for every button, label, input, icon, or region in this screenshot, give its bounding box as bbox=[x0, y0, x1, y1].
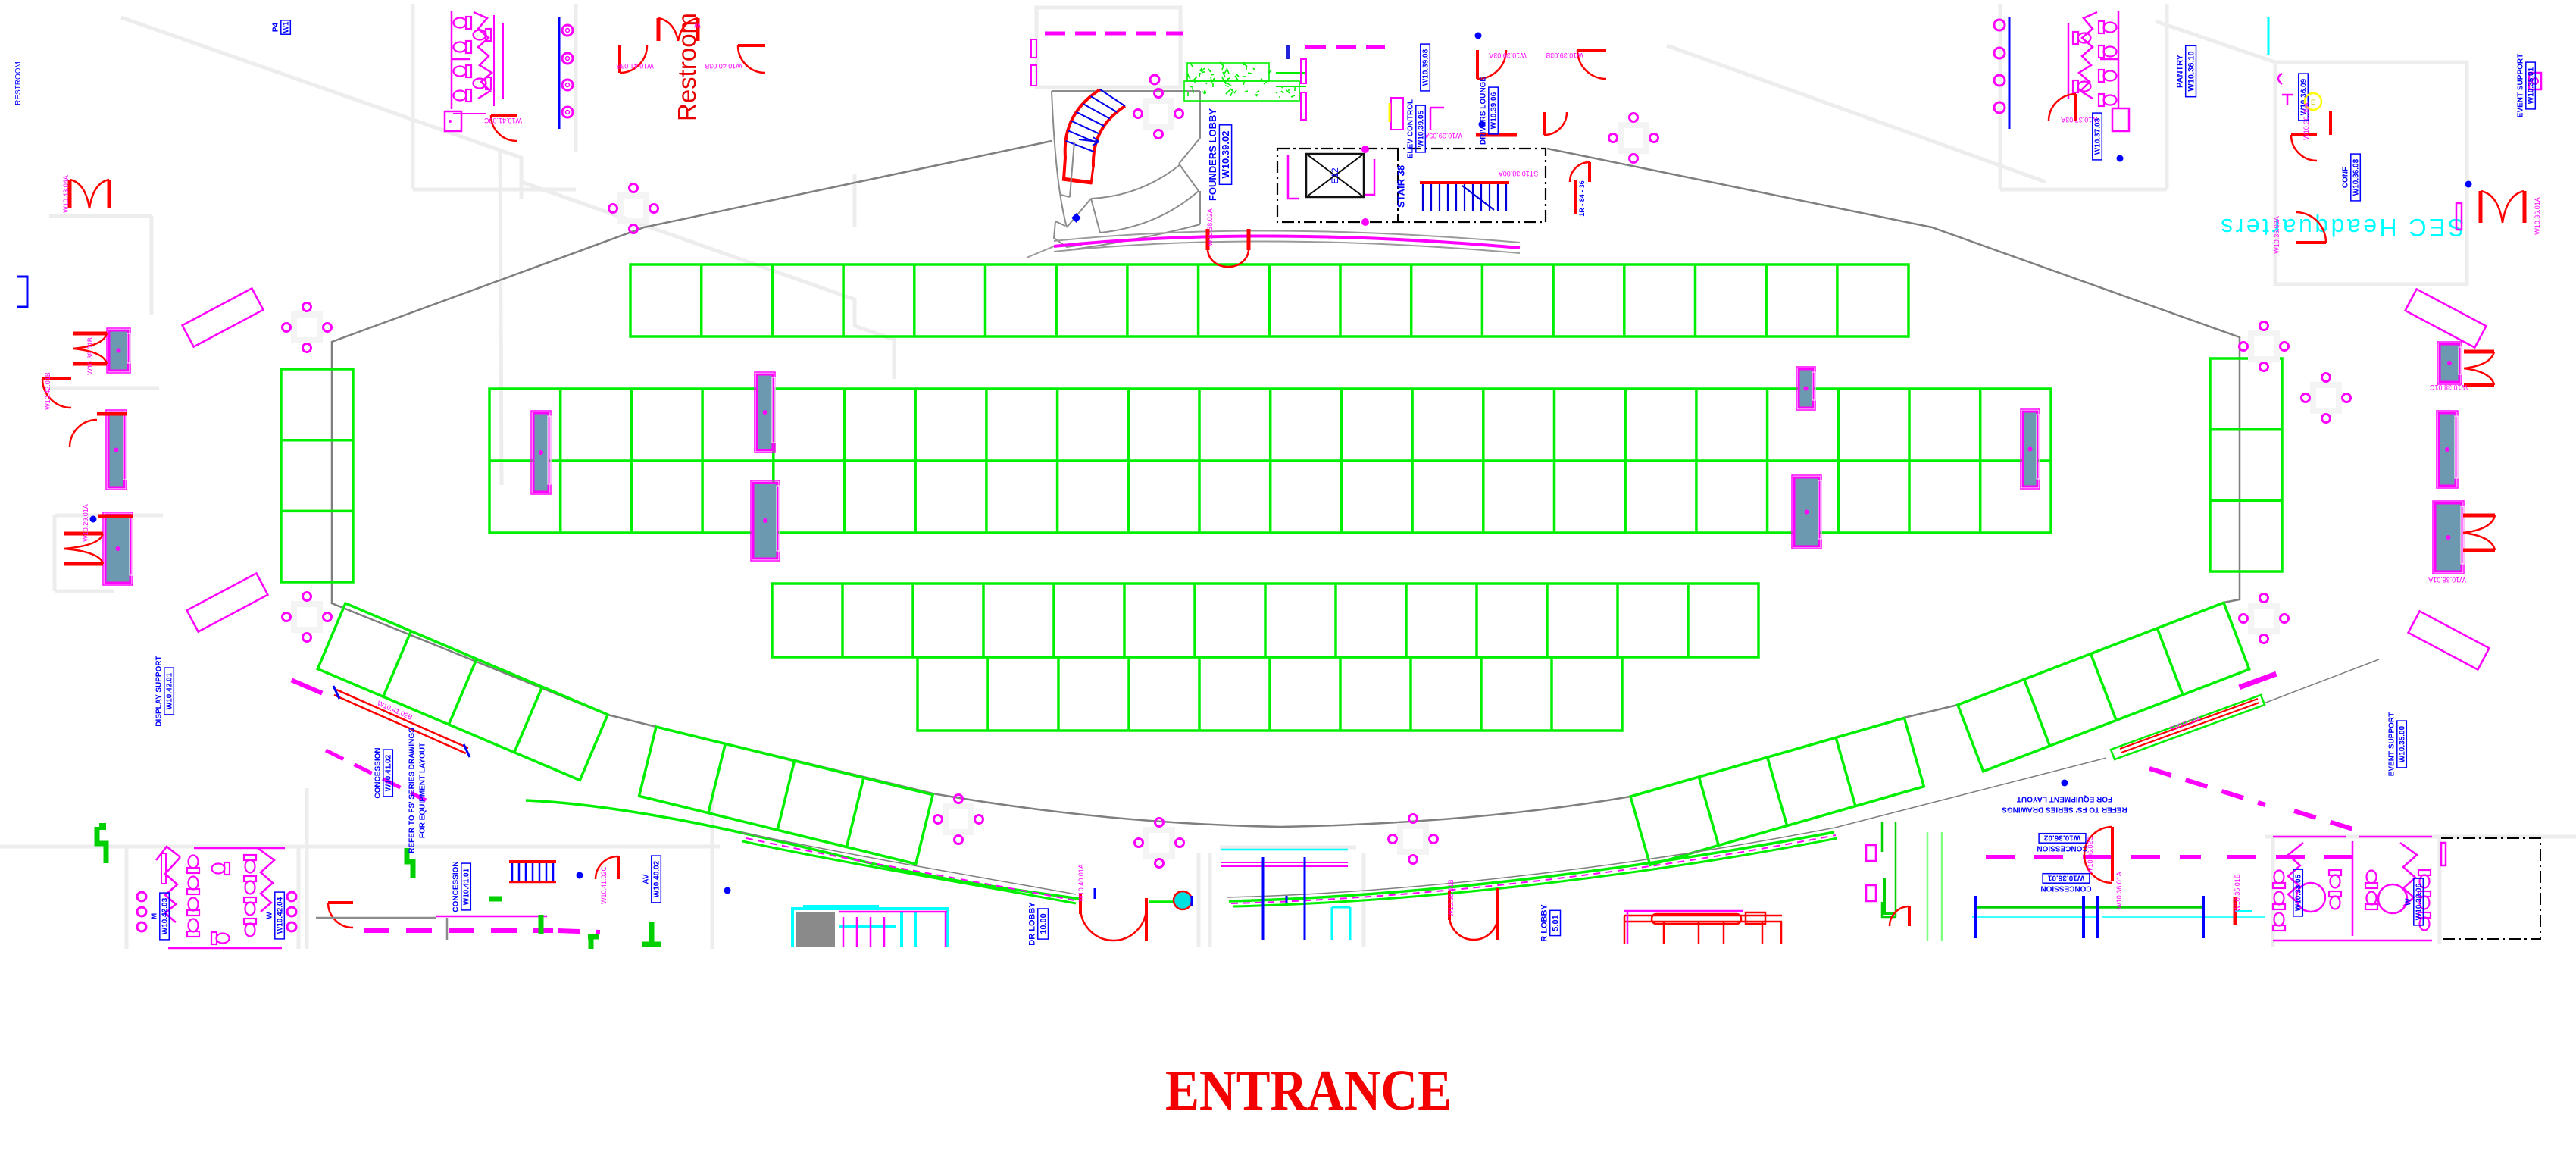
svg-text:FOUNDERS LOBBY: FOUNDERS LOBBY bbox=[1207, 108, 1218, 201]
svg-text:W10.37.03: W10.37.03 bbox=[2094, 117, 2102, 155]
svg-text:CONCESSION: CONCESSION bbox=[374, 747, 383, 798]
svg-text:W10.36.03A: W10.36.03A bbox=[2273, 216, 2281, 254]
svg-text:DRIVERS LOUNGE: DRIVERS LOUNGE bbox=[1480, 77, 1488, 145]
svg-text:W10.36.02: W10.36.02 bbox=[2043, 834, 2080, 842]
svg-text:ST10.38.00A: ST10.38.00A bbox=[1499, 170, 1539, 177]
svg-text:W: W bbox=[266, 912, 274, 919]
svg-text:DISPLAY SUPPORT: DISPLAY SUPPORT bbox=[155, 656, 164, 726]
svg-text:W10.40.02: W10.40.02 bbox=[653, 860, 661, 897]
svg-text:E12: E12 bbox=[1330, 167, 1340, 184]
svg-text:CONCESSION: CONCESSION bbox=[2040, 884, 2091, 893]
svg-text:W10.40.03B: W10.40.03B bbox=[705, 62, 742, 70]
svg-text:1R - 84 - 36: 1R - 84 - 36 bbox=[1578, 180, 1586, 217]
svg-text:W10.42.01B: W10.42.01B bbox=[44, 372, 52, 410]
svg-text:W10.39.08: W10.39.08 bbox=[1422, 49, 1430, 86]
svg-text:W10.39.05A: W10.39.05A bbox=[1424, 132, 1462, 139]
svg-text:W10.39.02: W10.39.02 bbox=[1220, 131, 1231, 179]
svg-text:W10.36.10: W10.36.10 bbox=[2187, 51, 2196, 91]
svg-text:W10.36.01: W10.36.01 bbox=[2047, 874, 2084, 882]
svg-text:RESTROOM: RESTROOM bbox=[14, 61, 23, 105]
svg-text:W10.38.06: W10.38.06 bbox=[2415, 883, 2424, 920]
svg-text:W10.36.01A: W10.36.01A bbox=[2534, 197, 2541, 235]
svg-text:DR LOBBY: DR LOBBY bbox=[1027, 902, 1036, 946]
svg-text:W10.41.03C: W10.41.03C bbox=[483, 117, 522, 124]
svg-text:W10.43.04A: W10.43.04A bbox=[62, 175, 70, 213]
svg-text:W10.38.01A: W10.38.01A bbox=[2428, 576, 2466, 584]
svg-text:FOR EQUIPMENT LAYOUT: FOR EQUIPMENT LAYOUT bbox=[2017, 795, 2112, 803]
svg-text:W10.41.01: W10.41.01 bbox=[463, 868, 471, 905]
svg-text:CONCESSION: CONCESSION bbox=[452, 861, 461, 912]
svg-text:W10.41.02C: W10.41.02C bbox=[600, 865, 608, 904]
svg-text:W10.39.03A: W10.39.03A bbox=[1489, 52, 1527, 59]
svg-text:W10.36.08: W10.36.08 bbox=[2352, 158, 2361, 196]
svg-text:ELEV CONTROL: ELEV CONTROL bbox=[1407, 99, 1415, 158]
svg-text:AV: AV bbox=[642, 874, 651, 884]
svg-text:W10.39.05: W10.39.05 bbox=[1418, 110, 1426, 147]
svg-text:W10.42.04: W10.42.04 bbox=[277, 897, 285, 934]
svg-text:10.00: 10.00 bbox=[1039, 913, 1048, 934]
svg-text:PANTRY: PANTRY bbox=[2175, 54, 2184, 88]
svg-text:5.01: 5.01 bbox=[1551, 915, 1560, 931]
svg-text:W10.35.01B: W10.35.01B bbox=[2234, 874, 2241, 912]
svg-text:W1: W1 bbox=[690, 21, 701, 29]
svg-text:W10.36.09A: W10.36.09A bbox=[2302, 102, 2310, 140]
svg-text:EVENT SUPPORT: EVENT SUPPORT bbox=[2517, 54, 2525, 117]
svg-text:R LOBBY: R LOBBY bbox=[1540, 904, 1549, 942]
svg-text:W10.35.01: W10.35.01 bbox=[2528, 67, 2536, 104]
svg-text:W: W bbox=[2405, 898, 2413, 906]
svg-text:SEC Headquarters: SEC Headquarters bbox=[2218, 214, 2465, 241]
svg-text:W10.35.00: W10.35.00 bbox=[2399, 725, 2407, 762]
svg-text:W10.39.06: W10.39.06 bbox=[1490, 92, 1499, 129]
svg-text:ENTRANCE: ENTRANCE bbox=[1165, 1059, 1452, 1122]
svg-text:EVENT SUPPORT: EVENT SUPPORT bbox=[2388, 712, 2396, 776]
svg-text:W10.38.05: W10.38.05 bbox=[2295, 874, 2303, 911]
svg-text:W10.39.01B: W10.39.01B bbox=[86, 337, 94, 375]
svg-text:W10.36.02C: W10.36.02C bbox=[2087, 835, 2094, 874]
svg-text:REFER TO FS' SERIES DRAWINGS: REFER TO FS' SERIES DRAWINGS bbox=[2002, 806, 2127, 814]
svg-text:W10.41.02: W10.41.02 bbox=[385, 754, 393, 791]
svg-text:W10.41.03B: W10.41.03B bbox=[616, 62, 654, 70]
svg-text:W10.38.01B: W10.38.01B bbox=[1447, 879, 1455, 917]
svg-text:CONF: CONF bbox=[2342, 167, 2350, 188]
svg-text:FOR EQUIPMENT LAYOUT: FOR EQUIPMENT LAYOUT bbox=[419, 743, 427, 838]
svg-text:M: M bbox=[151, 913, 159, 919]
svg-text:W10.40.01A: W10.40.01A bbox=[1077, 864, 1085, 902]
svg-text:W10.38.01C: W10.38.01C bbox=[2429, 383, 2468, 391]
svg-text:W10.29.01A: W10.29.01A bbox=[82, 504, 89, 542]
svg-text:W1: W1 bbox=[283, 21, 291, 33]
svg-text:W10.42.03: W10.42.03 bbox=[161, 897, 170, 934]
svg-text:W10.38.02A: W10.38.02A bbox=[1206, 208, 1214, 246]
svg-text:W10.36.01A: W10.36.01A bbox=[2115, 872, 2123, 909]
svg-text:W10.42.01: W10.42.01 bbox=[166, 672, 174, 709]
svg-text:W10.39.03B: W10.39.03B bbox=[1546, 52, 1583, 59]
svg-text:REFER TO FS' SERIES DRAWINGS: REFER TO FS' SERIES DRAWINGS bbox=[408, 728, 417, 853]
svg-text:P4: P4 bbox=[272, 22, 280, 32]
svg-text:E: E bbox=[2311, 99, 2315, 106]
svg-text:STAIR 38: STAIR 38 bbox=[1396, 165, 1407, 208]
svg-text:CONCESSION: CONCESSION bbox=[2037, 844, 2087, 853]
